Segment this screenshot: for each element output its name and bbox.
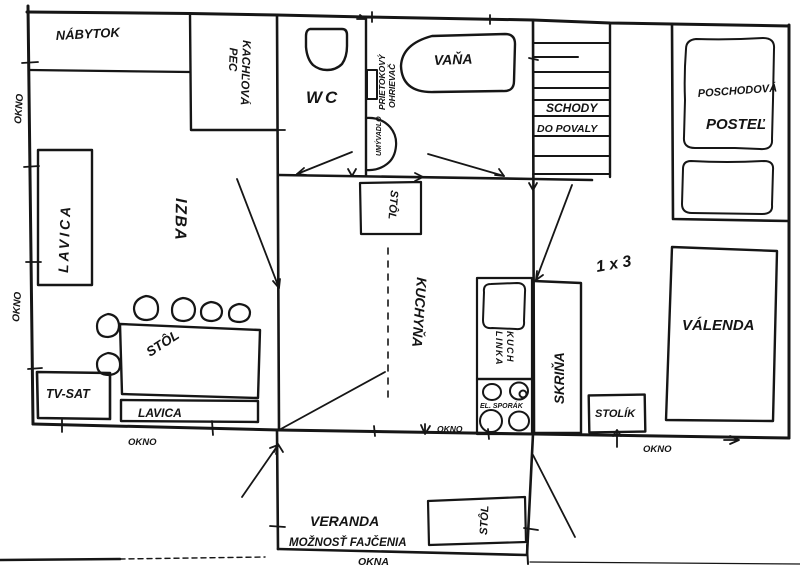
svg-text:LAVICA: LAVICA	[138, 406, 182, 420]
svg-text:DO POVALY: DO POVALY	[537, 123, 598, 135]
svg-text:TV-SAT: TV-SAT	[46, 387, 91, 401]
svg-text:EL. SPORÁK: EL. SPORÁK	[480, 401, 524, 410]
svg-text:STOLÍK: STOLÍK	[595, 407, 636, 420]
svg-text:STÔL: STÔL	[385, 190, 401, 221]
svg-text:OKNO: OKNO	[11, 291, 24, 322]
svg-text:OKNO: OKNO	[643, 444, 672, 455]
svg-text:KUCHLINKA: KUCHLINKA	[494, 331, 515, 366]
svg-text:SKRIŇA: SKRIŇA	[552, 352, 567, 404]
svg-text:STÔL: STÔL	[477, 505, 492, 535]
svg-text:OKNA: OKNA	[358, 556, 389, 568]
svg-text:VERANDA: VERANDA	[310, 513, 379, 529]
svg-text:MOŽNOSŤ FAJČENIA: MOŽNOSŤ FAJČENIA	[289, 536, 407, 549]
svg-text:LAVICA: LAVICA	[55, 204, 73, 274]
svg-text:OKNO: OKNO	[437, 424, 463, 434]
svg-text:SCHODY: SCHODY	[546, 101, 598, 115]
svg-text:POSTEĽ: POSTEĽ	[706, 116, 766, 133]
svg-text:VÁLENDA: VÁLENDA	[682, 317, 755, 334]
svg-text:IZBA: IZBA	[171, 198, 189, 242]
svg-text:OKNO: OKNO	[13, 93, 26, 124]
svg-text:OKNO: OKNO	[128, 437, 157, 448]
svg-text:UMÝVADLO: UMÝVADLO	[374, 116, 383, 156]
svg-text:VAŇA: VAŇA	[434, 50, 473, 68]
svg-text:WC: WC	[306, 88, 340, 107]
